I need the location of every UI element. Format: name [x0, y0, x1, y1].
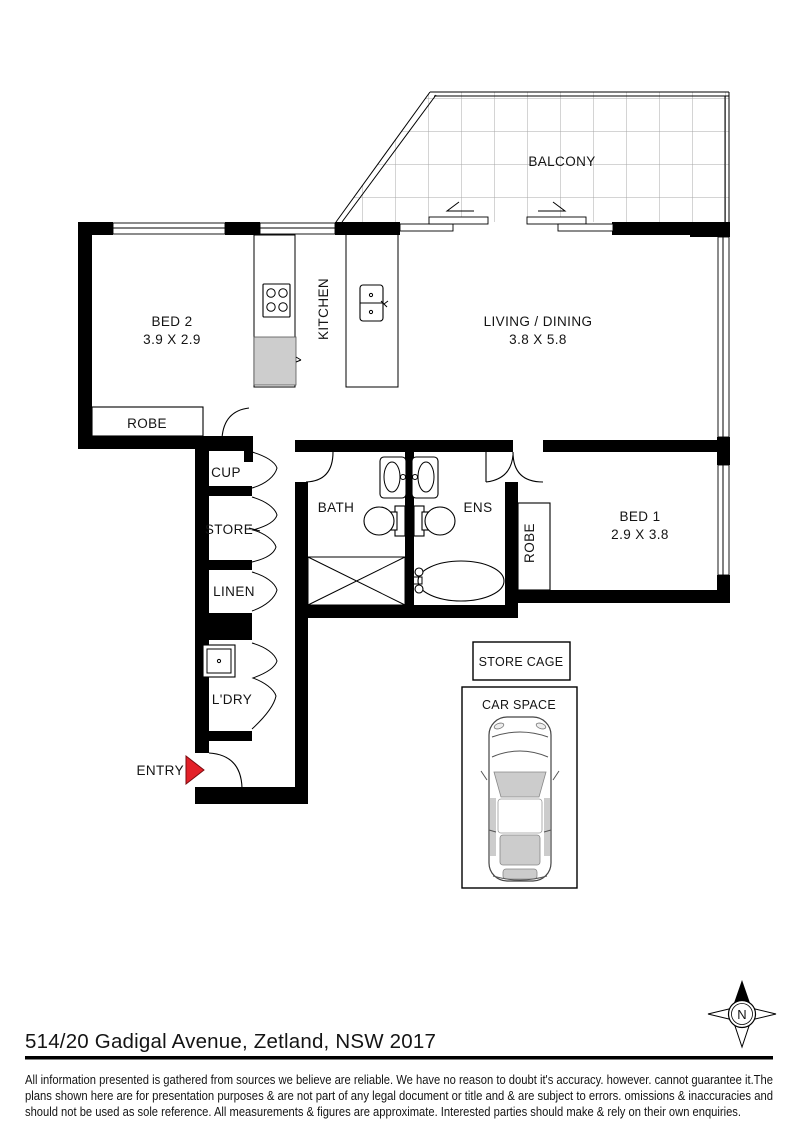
disclaimer-line-1: All information presented is gathered fr… [25, 1073, 773, 1087]
entry: ENTRY [136, 756, 204, 784]
ldry-label: L'DRY [212, 692, 252, 707]
kitchen-label: KITCHEN [316, 278, 331, 340]
disclaimer-line-2: plans shown here are for presentation pu… [25, 1089, 773, 1103]
kitchen: KITCHEN [254, 223, 398, 387]
laundry-tub [203, 645, 235, 677]
store-label: STORE [205, 522, 253, 537]
ldry-door [252, 643, 277, 729]
linen-door [252, 572, 277, 611]
ens-basin [412, 457, 438, 498]
shower [308, 557, 405, 605]
bed2-label: BED 2 [151, 314, 192, 329]
footer: 514/20 Gadigal Avenue, Zetland, NSW 2017… [25, 1030, 773, 1119]
car-space: CAR SPACE [462, 687, 577, 888]
bed1-label: BED 1 [619, 509, 660, 524]
address: 514/20 Gadigal Avenue, Zetland, NSW 2017 [25, 1030, 436, 1053]
window-bed1-east [718, 465, 729, 575]
cup-door [252, 452, 277, 488]
ens-label: ENS [464, 500, 493, 515]
bath-label: BATH [318, 500, 355, 515]
bed2-robe-label: ROBE [127, 416, 167, 431]
floorplan-svg: BALCONY [0, 0, 800, 1132]
island-bench [346, 223, 398, 387]
bed2-dims: 3.9 X 2.9 [143, 332, 201, 347]
store-cage: STORE CAGE [473, 642, 570, 680]
bathtub [414, 561, 504, 601]
bed1-robe-label: ROBE [522, 523, 537, 563]
disclaimer-line-3: should not be used as sole reference. Al… [25, 1105, 741, 1119]
entry-label: ENTRY [136, 763, 184, 778]
living-label: LIVING / DINING [484, 314, 593, 329]
footer-rule [25, 1056, 773, 1060]
bed2-door-arc [222, 408, 249, 438]
ens-door-arc [486, 452, 513, 482]
floorplan-page: BALCONY [0, 0, 800, 1132]
bath-door-arc [306, 452, 333, 482]
store-cage-label: STORE CAGE [479, 655, 564, 669]
balcony: BALCONY [336, 92, 729, 222]
bed1-dims: 2.9 X 3.8 [611, 527, 669, 542]
kitchen-sink [360, 285, 388, 321]
entry-arrow [186, 756, 204, 784]
robes: ROBE ROBE [92, 407, 550, 590]
window-living-east [718, 237, 729, 437]
bath-basin [380, 457, 406, 498]
entry-door-arc [209, 753, 242, 788]
cooktop [263, 284, 290, 317]
car-space-label: CAR SPACE [482, 698, 556, 712]
bath-toilet [364, 506, 405, 536]
car-illustration [481, 717, 559, 881]
cup-label: CUP [211, 465, 241, 480]
window-top-bed2 [113, 223, 225, 234]
bed1-door-arc [513, 452, 543, 482]
ens-toilet [414, 506, 455, 536]
balcony-label: BALCONY [528, 154, 595, 169]
laundry [203, 645, 235, 677]
window-top-kitchen [260, 223, 335, 234]
compass-n-label: N [737, 1007, 746, 1022]
kitchen-cabinet [254, 337, 301, 385]
compass-north-pointer [734, 980, 750, 1003]
living-dims: 3.8 X 5.8 [509, 332, 567, 347]
linen-label: LINEN [213, 584, 255, 599]
compass: N [708, 980, 776, 1047]
